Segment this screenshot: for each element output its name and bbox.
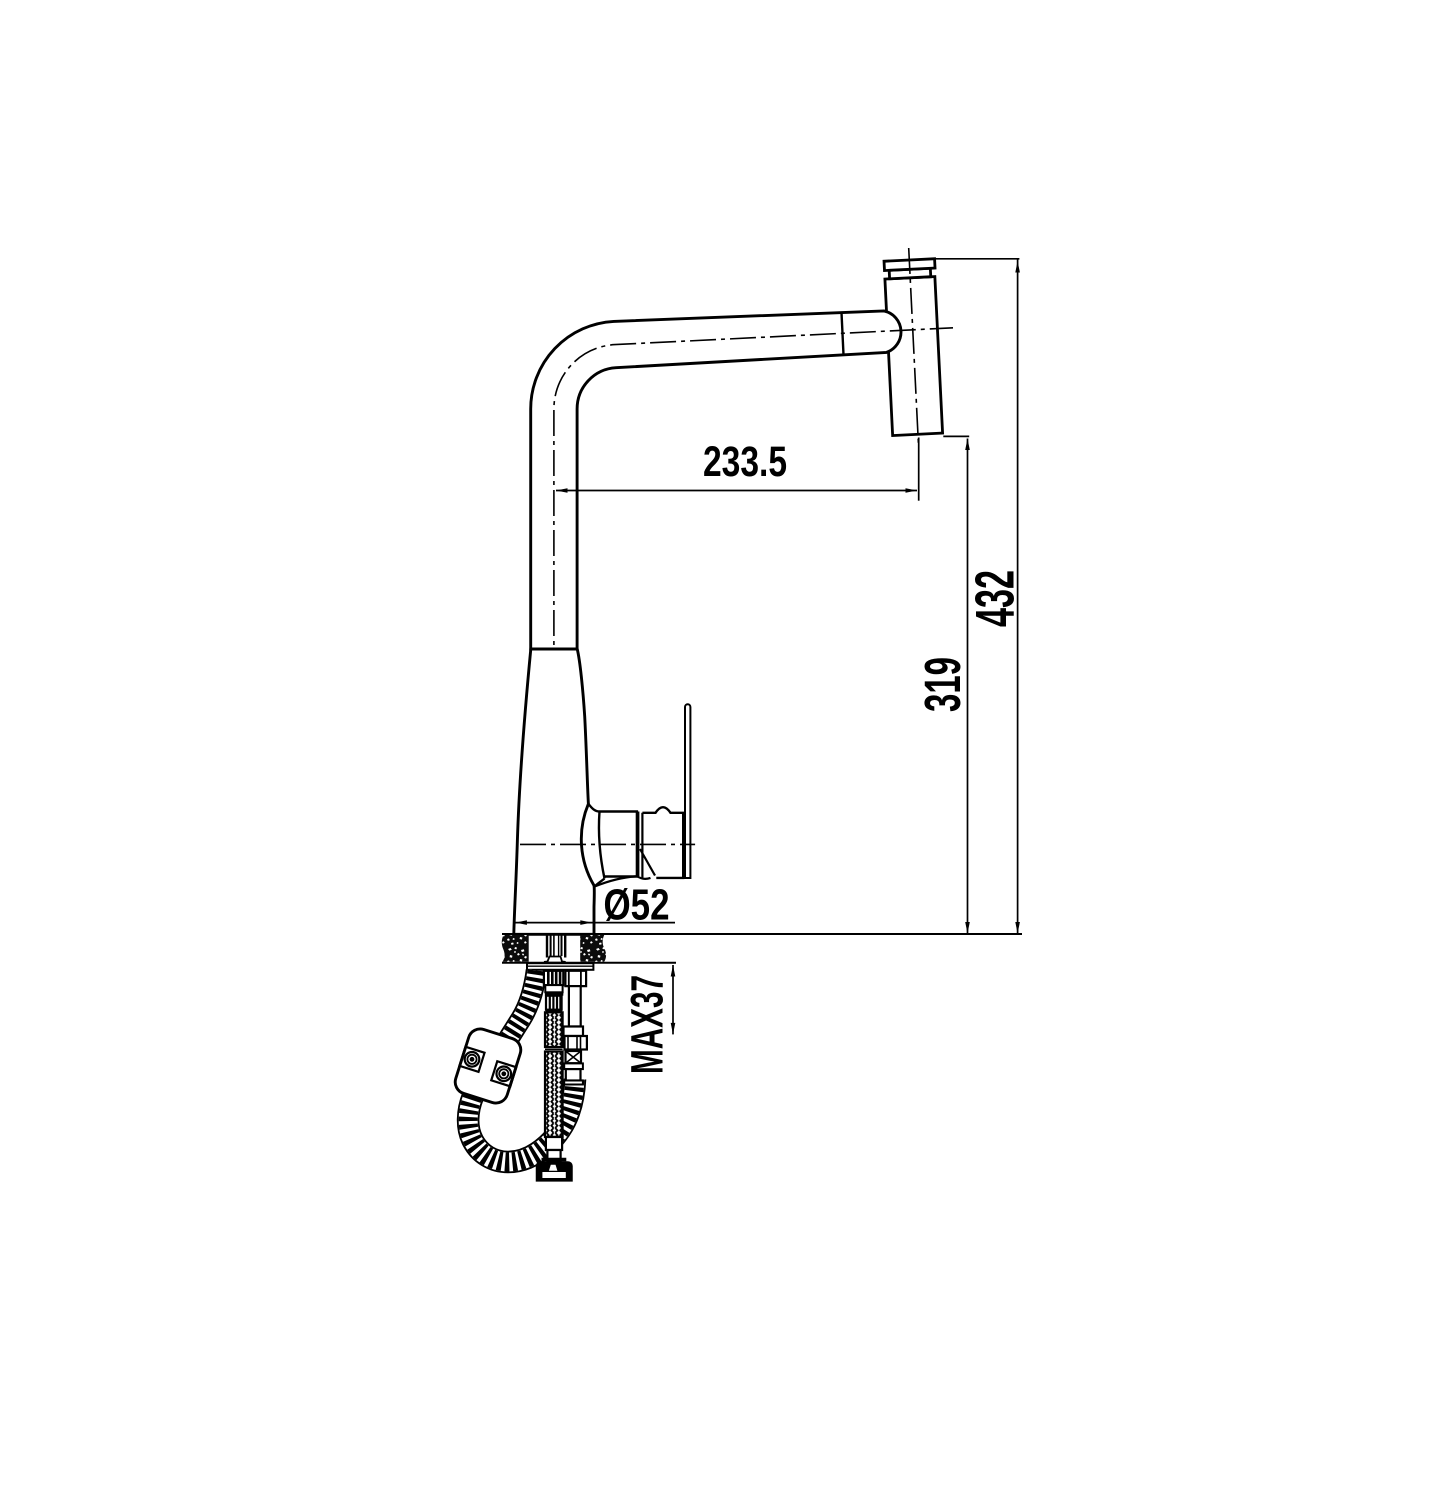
- svg-text:319: 319: [914, 657, 971, 712]
- svg-text:432: 432: [964, 570, 1026, 627]
- svg-text:233.5: 233.5: [703, 438, 787, 486]
- svg-text:Ø52: Ø52: [604, 881, 670, 930]
- svg-text:MAX37: MAX37: [622, 975, 673, 1074]
